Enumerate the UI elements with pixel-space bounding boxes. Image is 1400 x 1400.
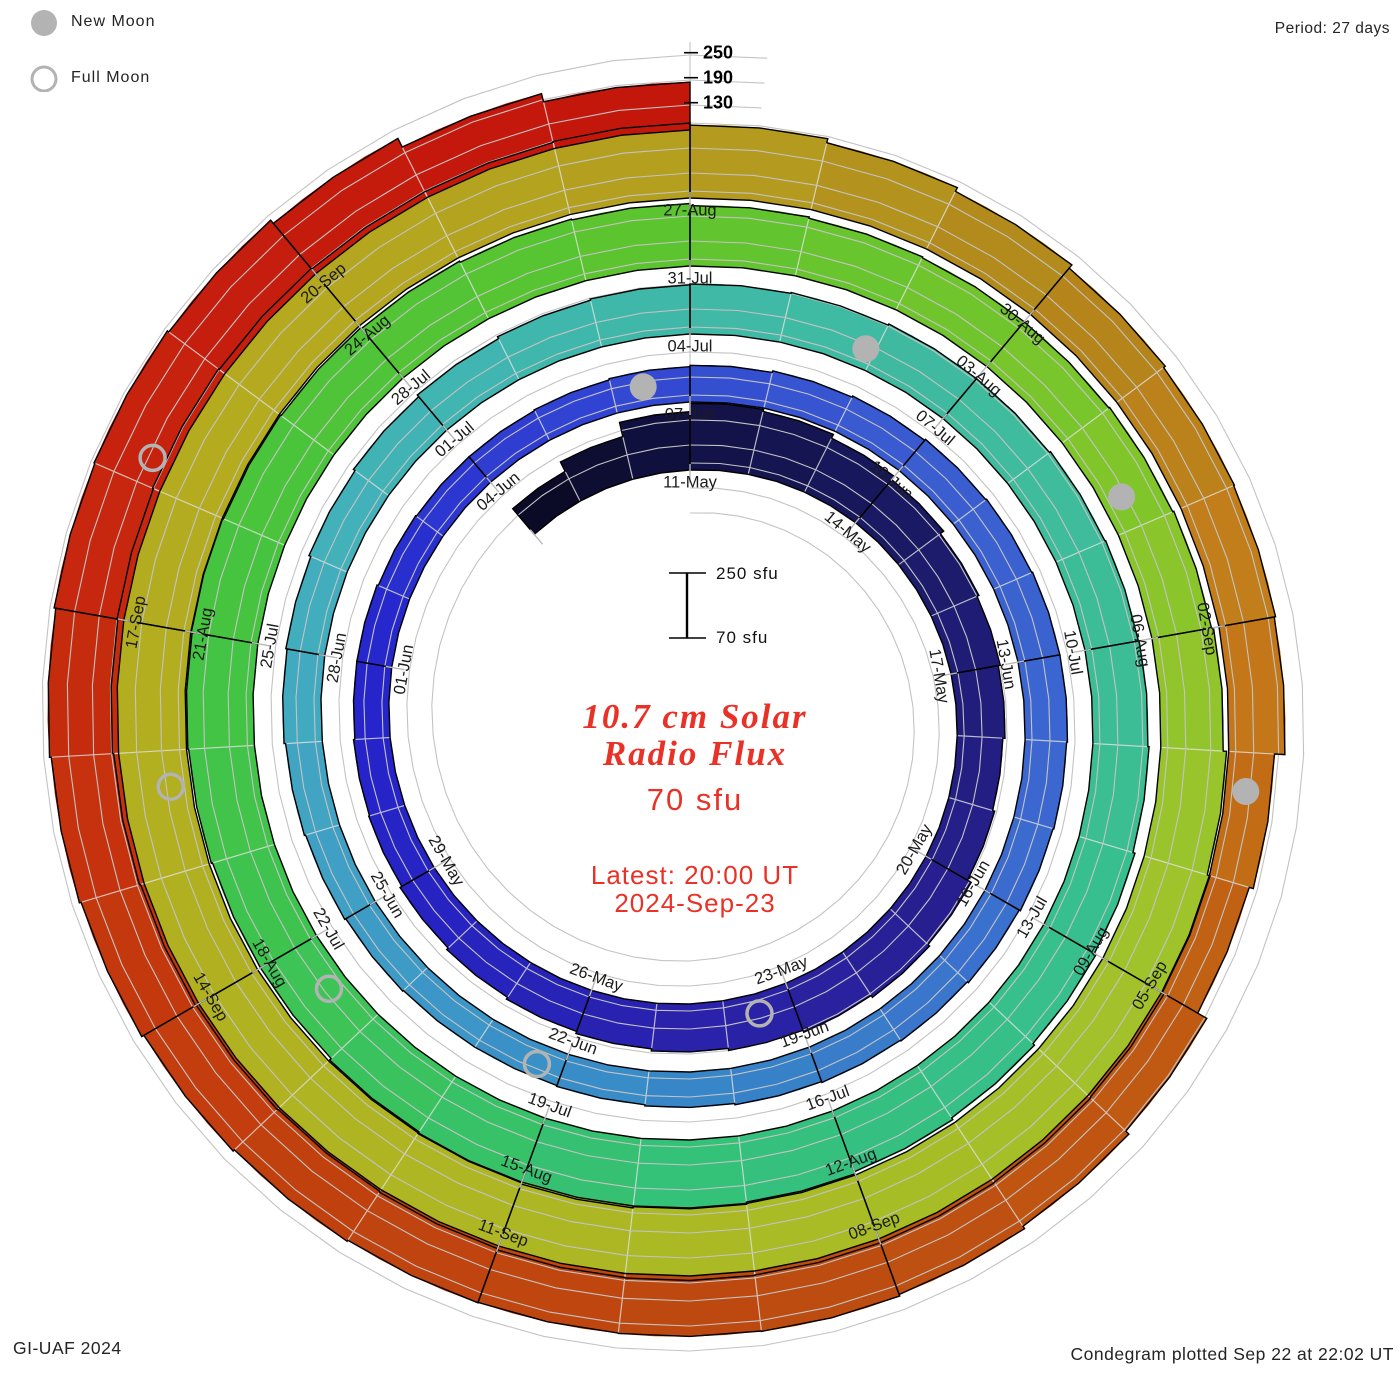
scale-bar-min-label: 70 sfu <box>716 628 768 648</box>
new-moon-icon <box>30 8 58 36</box>
new-moon-marker <box>852 335 879 362</box>
legend-item-new-moon: New Moon <box>30 6 155 38</box>
chart-title-line2: Radio Flux <box>440 734 950 774</box>
scale-bar-max-label: 250 sfu <box>716 564 779 584</box>
new-moon-marker <box>1232 778 1259 805</box>
footer-plotted-timestamp: Condegram plotted Sep 22 at 22:02 UT <box>1071 1344 1394 1365</box>
date-label: 11-May <box>663 473 718 491</box>
flux-bar <box>354 661 392 739</box>
flux-bar <box>283 649 325 744</box>
date-label: 31-Jul <box>668 269 713 287</box>
flux-bar <box>690 284 791 342</box>
full-moon-label: Full Moon <box>71 69 150 87</box>
date-label: 27-Aug <box>663 201 716 219</box>
date-label: 04-Jul <box>668 337 713 355</box>
new-moon-label: New Moon <box>71 13 155 31</box>
flux-axis-label: 250 <box>703 43 733 63</box>
flux-axis-label: 190 <box>703 68 733 88</box>
current-flux-value: 70 sfu <box>440 782 950 818</box>
flux-bar <box>951 666 1005 739</box>
flux-axis-label: 130 <box>703 93 733 113</box>
latest-time-label: Latest: 20:00 UT <box>440 860 950 891</box>
flux-scale-bar <box>666 566 714 648</box>
full-moon-icon <box>30 64 58 92</box>
latest-date-label: 2024-Sep-23 <box>440 888 950 919</box>
footer-credit: GI-UAF 2024 <box>13 1338 122 1359</box>
period-label: Period: 27 days <box>1275 20 1390 38</box>
legend-item-full-moon: Full Moon <box>30 62 155 94</box>
moon-legend: New Moon Full Moon <box>30 6 155 118</box>
flux-bar <box>403 968 493 1048</box>
condegram-page: 13019025011-May14-May17-May20-May23-May2… <box>0 0 1400 1400</box>
new-moon-marker <box>630 373 657 400</box>
flux-bar <box>645 1068 735 1107</box>
flux-bar <box>346 902 428 991</box>
flux-bar <box>690 125 828 210</box>
chart-title-line1: 10.7 cm Solar <box>440 697 950 737</box>
new-moon-marker <box>1108 483 1135 510</box>
date-label: 07-Jun <box>665 405 715 423</box>
